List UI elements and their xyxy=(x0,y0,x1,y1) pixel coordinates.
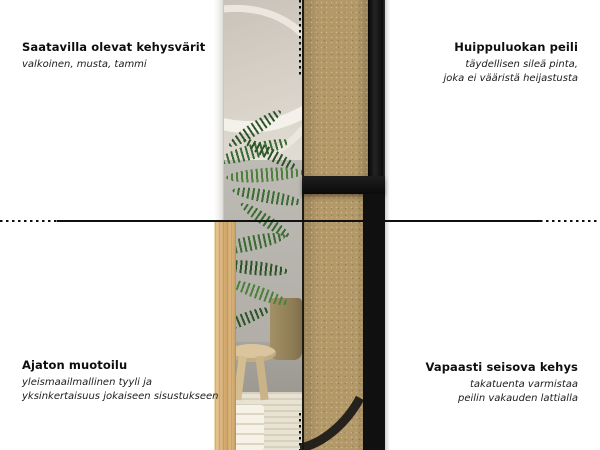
annotation-title: Saatavilla olevat kehysvärit xyxy=(22,40,222,54)
annotation-subtitle-line: takatuenta varmistaa xyxy=(378,378,578,392)
divider-horizontal-solid xyxy=(57,220,540,222)
divider-horizontal-dotted-left xyxy=(0,220,57,222)
infographic-canvas: Saatavilla olevat kehysvärit valkoinen, … xyxy=(0,0,600,450)
divider-vertical-dotted-top xyxy=(299,0,301,78)
annotation-subtitle-line: valkoinen, musta, tammi xyxy=(22,58,222,72)
annotation-subtitle-line: peilin vakauden lattialla xyxy=(378,392,578,406)
annotation-premium-mirror: Huippuluokan peili täydellisen sileä pin… xyxy=(378,40,578,86)
annotation-title: Huippuluokan peili xyxy=(378,40,578,54)
annotation-timeless-design: Ajaton muotoilu yleismaailmallinen tyyli… xyxy=(22,358,222,404)
annotation-subtitle-line: joka ei vääristä heijastusta xyxy=(378,72,578,86)
annotation-subtitle-line: yksinkertaisuus jokaiseen sisustukseen xyxy=(22,390,222,404)
annotation-subtitle-line: täydellisen sileä pinta, xyxy=(378,58,578,72)
annotation-title: Vapaasti seisova kehys xyxy=(378,360,578,374)
annotation-title: Ajaton muotoilu xyxy=(22,358,222,372)
annotation-freestanding-frame: Vapaasti seisova kehys takatuenta varmis… xyxy=(378,360,578,406)
annotation-subtitle-line: yleismaailmallinen tyyli ja xyxy=(22,376,222,390)
divider-horizontal-dotted-right xyxy=(540,220,600,222)
annotation-frame-colors: Saatavilla olevat kehysvärit valkoinen, … xyxy=(22,40,222,72)
divider-vertical-dotted-bottom xyxy=(299,413,301,450)
annotation-layer: Saatavilla olevat kehysvärit valkoinen, … xyxy=(0,0,600,450)
